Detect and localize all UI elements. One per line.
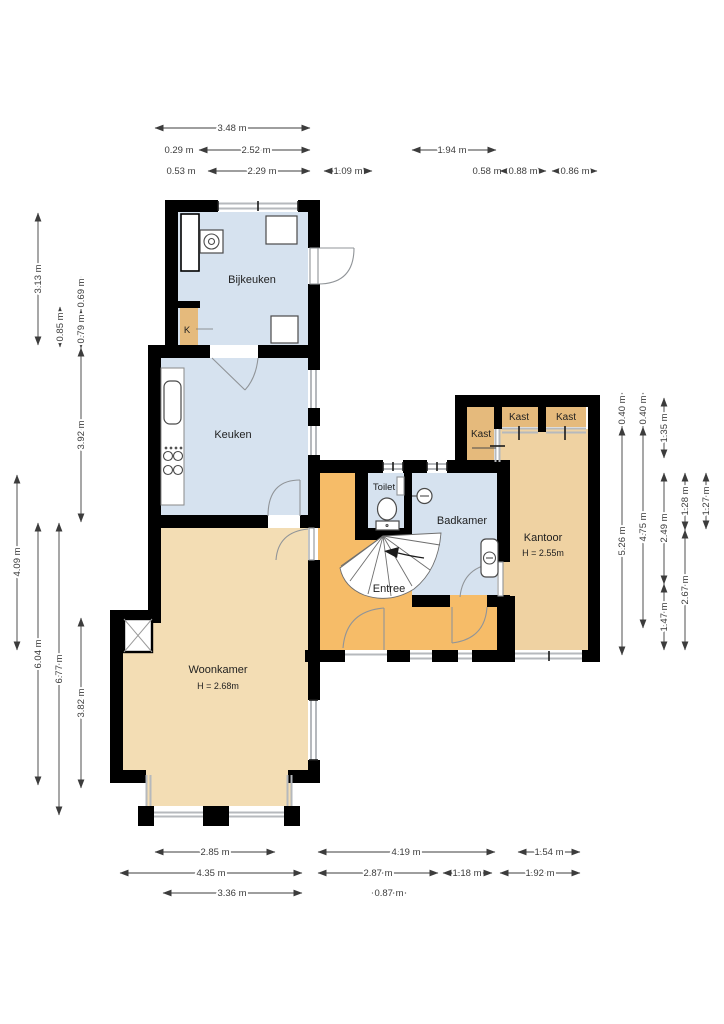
svg-text:3.92 m: 3.92 m xyxy=(76,420,87,449)
label-kantoor: Kantoor xyxy=(524,532,563,544)
svg-text:4.09 m: 4.09 m xyxy=(12,547,23,576)
dim-right-3: 4.75 m xyxy=(638,427,649,628)
svg-text:2.85 m: 2.85 m xyxy=(200,847,229,858)
svg-text:5.26 m: 5.26 m xyxy=(617,526,628,555)
dim-bottom-1: 4.19 m xyxy=(318,847,495,858)
svg-text:1.35 m: 1.35 m xyxy=(659,413,670,442)
dimensions-bottom: 2.85 m 4.19 m 1.54 m 4.35 m 2.87 m 1.18 … xyxy=(120,847,580,899)
svg-text:1.28 m: 1.28 m xyxy=(680,486,691,515)
svg-text:0.85 m: 0.85 m xyxy=(55,312,66,341)
dim-left-0: 3.13 m xyxy=(33,213,44,345)
dim-top-0: 3.48 m xyxy=(155,123,310,134)
svg-text:1.18 m: 1.18 m xyxy=(452,868,481,879)
svg-text:0.40 m: 0.40 m xyxy=(638,395,649,424)
dim-right-5: 2.49 m xyxy=(659,473,670,584)
svg-text:0.69 m: 0.69 m xyxy=(76,278,87,307)
appliance-top-icon xyxy=(266,216,297,244)
svg-text:2.52 m: 2.52 m xyxy=(241,145,270,156)
svg-text:4.19 m: 4.19 m xyxy=(391,847,420,858)
svg-text:1.27 m: 1.27 m xyxy=(701,486,712,515)
label-entree: Entree xyxy=(373,583,405,595)
dim-right-2: 0.40 m xyxy=(638,393,649,427)
window-badkamer-top xyxy=(427,462,447,471)
window-keuken-right-2 xyxy=(311,426,316,455)
washing-machine-icon xyxy=(200,230,223,253)
svg-text:6.77 m: 6.77 m xyxy=(54,654,65,683)
label-keuken: Keuken xyxy=(214,429,251,441)
label-kantoor-height: H = 2.55m xyxy=(522,548,564,558)
dim-bottom-0: 2.85 m xyxy=(155,847,275,858)
window-bay-front-1 xyxy=(154,813,203,817)
bathroom-sink-icon xyxy=(481,539,498,577)
svg-text:4.35 m: 4.35 m xyxy=(196,868,225,879)
dim-left-4: 3.92 m xyxy=(76,348,87,522)
svg-text:0.58 m: 0.58 m xyxy=(472,166,501,177)
label-badkamer: Badkamer xyxy=(437,515,487,527)
chimney-icon xyxy=(124,619,152,652)
label-toilet: Toilet xyxy=(373,482,396,493)
svg-text:1.47 m: 1.47 m xyxy=(659,602,670,631)
dim-top-1: 0.29 m xyxy=(164,145,193,156)
window-entree-bottom-2 xyxy=(458,654,472,659)
label-woonkamer-height: H = 2.68m xyxy=(197,681,239,691)
svg-text:3.13 m: 3.13 m xyxy=(33,264,44,293)
dim-bottom-7: 3.36 m xyxy=(163,888,302,899)
svg-text:1.94 m: 1.94 m xyxy=(437,145,466,156)
dim-left-7: 6.77 m xyxy=(54,523,65,815)
floorplan-drawing: Bijkeuken Keuken Woonkamer H = 2.68m Ent… xyxy=(0,0,724,1024)
label-k-closet: K xyxy=(184,325,191,336)
svg-text:0.40 m: 0.40 m xyxy=(617,395,628,424)
window-bijkeuken-top xyxy=(218,201,298,211)
toilet-icon xyxy=(376,498,399,530)
dim-left-8: 3.82 m xyxy=(76,618,87,788)
dim-bottom-2: 1.54 m xyxy=(518,847,580,858)
kitchen-counter xyxy=(161,368,184,505)
svg-text:2.49 m: 2.49 m xyxy=(659,513,670,542)
dim-top-2: 2.52 m xyxy=(199,145,310,156)
dim-right-7: 1.28 m xyxy=(680,473,691,530)
dim-right-6: 1.47 m xyxy=(659,584,670,650)
dim-left-1: 0.85 m xyxy=(55,307,66,347)
dim-top-3: 1.94 m xyxy=(412,145,496,156)
svg-text:2.29 m: 2.29 m xyxy=(247,166,276,177)
floorplan-page: Bijkeuken Keuken Woonkamer H = 2.68m Ent… xyxy=(0,0,724,1024)
svg-text:0.87 m: 0.87 m xyxy=(374,888,403,899)
window-keuken-right-1 xyxy=(311,370,316,408)
dim-top-9: 0.86 m xyxy=(552,166,597,177)
door-bijkeuken-exterior xyxy=(310,248,354,284)
dim-bottom-6: 1.92 m xyxy=(500,868,580,879)
svg-text:2.67 m: 2.67 m xyxy=(680,575,691,604)
cabinet-bijkeuken xyxy=(181,214,199,271)
svg-text:1.92 m: 1.92 m xyxy=(525,868,554,879)
label-kast-top-2: Kast xyxy=(556,412,576,423)
label-woonkamer: Woonkamer xyxy=(188,664,247,676)
dim-bottom-4: 2.87 m xyxy=(318,868,438,879)
appliance-bottom-icon xyxy=(271,316,298,343)
sink-icon xyxy=(164,381,181,424)
dim-top-6: 1.09 m xyxy=(324,166,372,177)
svg-text:0.29 m: 0.29 m xyxy=(164,145,193,156)
dim-left-3: 0.79 m xyxy=(76,310,87,348)
label-kast-left: Kast xyxy=(471,429,491,440)
dim-bottom-3: 4.35 m xyxy=(120,868,302,879)
label-bijkeuken: Bijkeuken xyxy=(228,274,276,286)
dim-bottom-5: 1.18 m xyxy=(443,868,492,879)
svg-text:6.04 m: 6.04 m xyxy=(33,639,44,668)
window-bay-front-2 xyxy=(229,813,284,817)
label-kast-top-1: Kast xyxy=(509,412,529,423)
svg-text:3.48 m: 3.48 m xyxy=(217,123,246,134)
dim-left-2: 0.69 m xyxy=(76,277,87,310)
dimensions-left: 3.13 m 0.85 m 0.69 m 0.79 m 3.92 m 4.09 … xyxy=(12,213,87,815)
svg-text:3.36 m: 3.36 m xyxy=(217,888,246,899)
dim-top-4: 0.53 m xyxy=(166,166,195,177)
dim-right-9: 1.27 m xyxy=(701,473,712,529)
dim-left-5: 4.09 m xyxy=(12,475,23,650)
dim-right-1: 5.26 m xyxy=(617,427,628,655)
dim-right-4: 1.35 m xyxy=(659,398,670,458)
window-woonkamer-right xyxy=(309,700,318,760)
dim-top-7: 0.58 m xyxy=(472,166,501,177)
dim-top-5: 2.29 m xyxy=(208,166,310,177)
svg-text:0.53 m: 0.53 m xyxy=(166,166,195,177)
svg-text:1.54 m: 1.54 m xyxy=(534,847,563,858)
window-kantoor-bottom xyxy=(515,651,582,661)
dimensions-top: 3.48 m 0.29 m 2.52 m 1.94 m 0.53 m 2.29 … xyxy=(155,123,597,177)
svg-text:4.75 m: 4.75 m xyxy=(638,512,649,541)
dim-bottom-8: 0.87 m xyxy=(372,888,406,899)
svg-text:0.88 m: 0.88 m xyxy=(508,166,537,177)
window-toilet-top xyxy=(383,462,403,471)
svg-text:0.79 m: 0.79 m xyxy=(76,314,87,343)
dim-right-0: 0.40 m xyxy=(617,393,628,427)
svg-text:3.82 m: 3.82 m xyxy=(76,688,87,717)
dimensions-right: 0.40 m 5.26 m 0.40 m 4.75 m 1.35 m 2.49 … xyxy=(617,393,712,655)
svg-text:1.09 m: 1.09 m xyxy=(333,166,362,177)
door-toilet xyxy=(397,477,404,495)
svg-text:0.86 m: 0.86 m xyxy=(560,166,589,177)
svg-text:2.87 m: 2.87 m xyxy=(363,868,392,879)
dim-top-8: 0.88 m xyxy=(500,166,546,177)
window-entree-bottom-1 xyxy=(410,654,432,659)
dim-right-8: 2.67 m xyxy=(680,530,691,650)
dim-left-6: 6.04 m xyxy=(33,523,44,785)
